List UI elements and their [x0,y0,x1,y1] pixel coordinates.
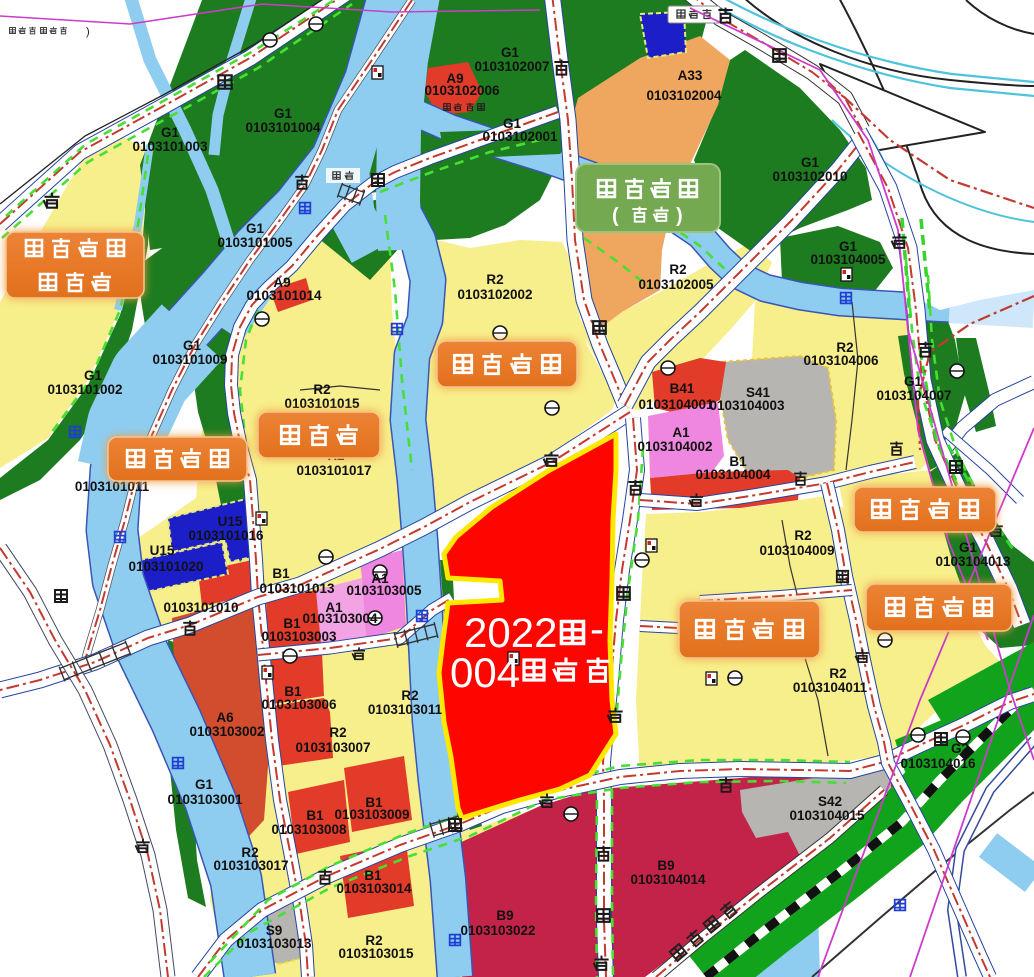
svg-text:0103104005: 0103104005 [810,252,886,267]
svg-text:B9: B9 [496,908,513,923]
svg-text:B1: B1 [272,566,290,581]
svg-text:0103103007: 0103103007 [295,740,370,755]
svg-text:0103103002: 0103103002 [189,724,264,739]
svg-text:R2: R2 [313,382,330,397]
svg-text:0103101005: 0103101005 [217,235,293,250]
svg-text:G1: G1 [801,155,820,170]
svg-text:A33: A33 [678,68,703,83]
svg-text:0103104009: 0103104009 [759,543,834,558]
svg-text:0103102006: 0103102006 [424,83,500,98]
svg-text:R2: R2 [794,528,811,543]
svg-text:0103103017: 0103103017 [213,858,288,873]
svg-text:004: 004 [450,649,520,696]
svg-text:0103101017: 0103101017 [296,463,371,478]
svg-text:0103103003: 0103103003 [261,629,337,644]
svg-text:0103101015: 0103101015 [284,396,360,411]
svg-text:0103104016: 0103104016 [900,756,976,771]
svg-text:R2: R2 [401,688,418,703]
svg-text:0103103006: 0103103006 [261,697,337,712]
svg-text:): ) [86,26,90,38]
svg-text:0103101009: 0103101009 [152,352,227,367]
svg-text:0103104014: 0103104014 [630,872,706,887]
svg-text:0103102004: 0103102004 [646,88,722,103]
svg-text:): ) [676,205,683,227]
svg-text:G2: G2 [951,741,969,756]
svg-text:0103104001: 0103104001 [638,397,714,412]
svg-text:G1: G1 [161,125,180,140]
svg-text:R2: R2 [669,262,686,277]
svg-text:0103104013: 0103104013 [935,554,1011,569]
svg-text:0103102005: 0103102005 [638,277,714,292]
svg-text:0103104007: 0103104007 [876,388,951,403]
svg-text:0103103005: 0103103005 [346,583,422,598]
svg-text:G1: G1 [183,338,202,353]
svg-text:0103103013: 0103103013 [236,936,312,951]
svg-text:0103103011: 0103103011 [368,702,443,717]
svg-text:G1: G1 [84,368,103,383]
svg-text:0103101010: 0103101010 [163,600,238,615]
svg-text:0103104002: 0103104002 [637,439,712,454]
svg-text:G1: G1 [959,540,978,555]
svg-text:-: - [590,605,604,652]
svg-text:0103104011: 0103104011 [793,680,868,695]
svg-text:0103101004: 0103101004 [245,120,321,135]
svg-text:0103101003: 0103101003 [132,139,208,154]
svg-text:0103104004: 0103104004 [695,467,771,482]
svg-text:R2: R2 [486,272,503,287]
svg-text:0103102007: 0103102007 [474,59,549,74]
svg-text:0103103014: 0103103014 [336,881,412,896]
svg-text:0103102002: 0103102002 [457,287,532,302]
svg-text:0103104015: 0103104015 [789,808,865,823]
svg-text:B9: B9 [657,858,674,873]
svg-text:0103102010: 0103102010 [772,169,847,184]
svg-text:S42: S42 [818,794,842,809]
svg-text:U15: U15 [150,543,175,558]
svg-text:0103104003: 0103104003 [709,398,785,413]
svg-text:0103103001: 0103103001 [167,792,243,807]
svg-text:0103103004: 0103103004 [302,611,378,626]
svg-text:A6: A6 [216,710,234,725]
svg-text:(: ( [612,205,619,227]
svg-text:G1: G1 [904,374,923,389]
svg-text:0103104006: 0103104006 [803,353,879,368]
svg-text:0103103022: 0103103022 [460,923,535,938]
svg-text:G1: G1 [195,777,214,792]
svg-text:G1: G1 [501,45,520,60]
svg-text:0103102001: 0103102001 [482,129,558,144]
svg-text:R2: R2 [329,725,346,740]
svg-text:0103103008: 0103103008 [271,822,347,837]
svg-text:R2: R2 [829,666,846,681]
svg-text:0103101002: 0103101002 [47,382,122,397]
svg-text:G1: G1 [246,221,265,236]
svg-text:A1: A1 [672,425,690,440]
svg-text:0103101020: 0103101020 [128,559,203,574]
svg-text:0103103015: 0103103015 [338,946,414,961]
svg-text:0103101016: 0103101016 [188,528,264,543]
svg-text:U15: U15 [218,514,243,529]
svg-text:0103101014: 0103101014 [246,288,322,303]
svg-text:B41: B41 [670,381,695,396]
svg-text:G1: G1 [274,106,293,121]
svg-text:0103103009: 0103103009 [334,807,409,822]
svg-text:B1: B1 [306,808,324,823]
svg-text:0103101013: 0103101013 [259,581,335,596]
